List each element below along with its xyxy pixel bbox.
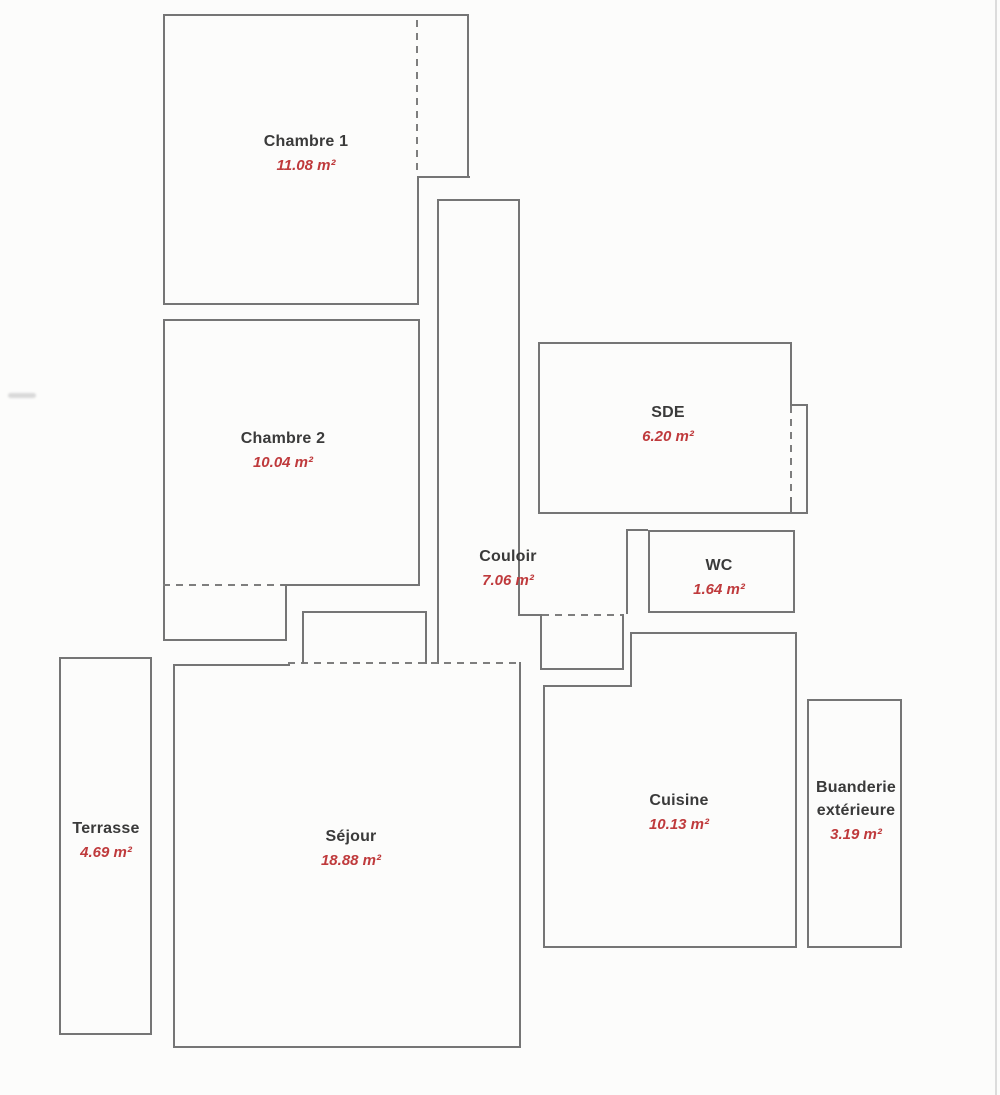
wall-chambre1-extension-bottom: [417, 176, 470, 178]
room-label-buanderie: Buanderie extérieure 3.19 m²: [794, 776, 918, 845]
wall-chambre2-closet-right: [285, 584, 287, 641]
wall-nook-left: [302, 611, 304, 664]
wall-nook-right: [425, 611, 427, 664]
opening-sde-dashed: [790, 406, 792, 497]
room-name: Terrasse: [26, 817, 186, 840]
room-name: Buanderie extérieure: [794, 776, 918, 822]
wall-duct-left: [540, 614, 542, 670]
wall-sde-bottom: [538, 512, 808, 514]
wall-sejour-bottom: [173, 1046, 521, 1048]
room-label-sejour: Séjour 18.88 m²: [251, 825, 451, 871]
wall-cuisine-top: [630, 632, 797, 634]
wall-wc-link: [626, 529, 648, 531]
wall-chambre1-right: [417, 176, 419, 305]
room-label-terrasse: Terrasse 4.69 m²: [26, 817, 186, 863]
wall-sde-right-upper: [790, 342, 792, 406]
wall-duct-bottom: [540, 668, 624, 670]
wall-sde-left: [538, 342, 540, 514]
room-area: 10.04 m²: [183, 453, 383, 473]
wall-cuisine-notch-left: [630, 632, 632, 687]
room-label-chambre2: Chambre 2 10.04 m²: [183, 427, 383, 473]
wall-wc-bottom: [648, 611, 795, 613]
wall-chambre1-extension-right: [467, 14, 469, 178]
room-label-chambre1: Chambre 1 11.08 m²: [206, 130, 406, 176]
wall-chambre2-closet-bottom: [163, 639, 287, 641]
wall-sejour-right: [519, 662, 521, 1048]
wall-sde-notch-right: [806, 404, 808, 514]
room-label-couloir: Couloir 7.06 m²: [408, 545, 608, 591]
wall-chambre1-left: [163, 14, 165, 305]
room-label-wc: WC 1.64 m²: [619, 554, 819, 600]
wall-chambre1-bottom: [163, 303, 419, 305]
room-area: 6.20 m²: [568, 427, 768, 447]
wall-sejour-top: [173, 664, 290, 666]
wall-chambre2-left: [163, 319, 165, 641]
room-name: Couloir: [408, 545, 608, 568]
room-area: 11.08 m²: [206, 156, 406, 176]
wall-couloir-top: [437, 199, 520, 201]
room-area: 4.69 m²: [26, 843, 186, 863]
scan-edge-line: [995, 0, 997, 1095]
room-area: 18.88 m²: [251, 851, 451, 871]
room-area: 3.19 m²: [794, 825, 918, 845]
wall-cuisine-notch-bottom: [543, 685, 632, 687]
wall-wc-top: [648, 530, 795, 532]
opening-entry-dashed: [288, 662, 518, 664]
wall-terrasse-top: [59, 657, 152, 659]
floor-plan: Chambre 1 11.08 m² Chambre 2 10.04 m² SD…: [0, 0, 1000, 1095]
opening-duct-dashed: [542, 614, 622, 616]
wall-chambre2-top: [163, 319, 420, 321]
wall-couloir-left: [437, 199, 439, 664]
room-label-sde: SDE 6.20 m²: [568, 401, 768, 447]
wall-cuisine-left: [543, 685, 545, 948]
room-area: 10.13 m²: [579, 815, 779, 835]
wall-chambre1-top: [163, 14, 469, 16]
wall-couloir-stub: [518, 614, 542, 616]
room-name: Séjour: [251, 825, 451, 848]
room-name: Chambre 1: [206, 130, 406, 153]
opening-chambre2-dashed: [163, 584, 281, 586]
wall-chambre2-bottom: [281, 584, 420, 586]
wall-nook-top: [302, 611, 427, 613]
wall-sde-right-lower: [790, 497, 792, 514]
wall-buanderie-top: [807, 699, 902, 701]
room-area: 7.06 m²: [408, 571, 608, 591]
wall-buanderie-bottom: [807, 946, 902, 948]
room-label-cuisine: Cuisine 10.13 m²: [579, 789, 779, 835]
room-name: Cuisine: [579, 789, 779, 812]
wall-sde-top: [538, 342, 792, 344]
wall-terrasse-bottom: [59, 1033, 152, 1035]
scan-smudge: [8, 393, 36, 398]
room-area: 1.64 m²: [619, 580, 819, 600]
wall-duct-right: [622, 614, 624, 670]
opening-chambre1-dashed: [416, 20, 418, 176]
room-name: Chambre 2: [183, 427, 383, 450]
room-name: WC: [619, 554, 819, 577]
room-name: SDE: [568, 401, 768, 424]
wall-cuisine-bottom: [543, 946, 797, 948]
